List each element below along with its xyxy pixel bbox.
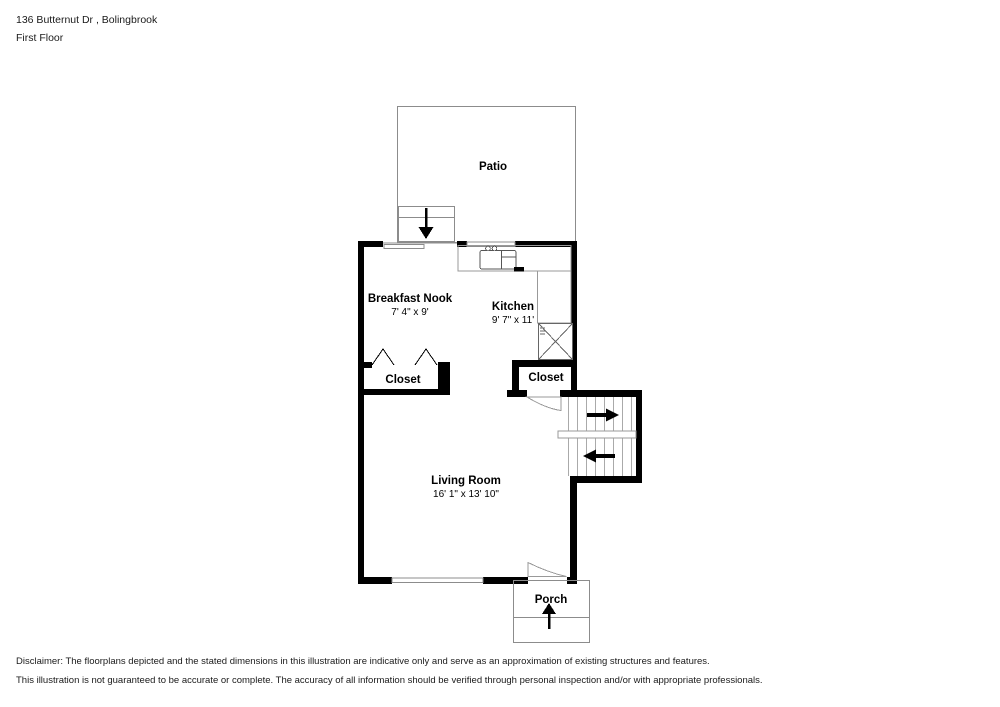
room-name: Closet bbox=[528, 371, 563, 385]
faucet-icon bbox=[486, 246, 491, 251]
room-name: Kitchen bbox=[492, 300, 534, 314]
room-name: Breakfast Nook bbox=[368, 292, 452, 306]
wall-stairs-top bbox=[560, 390, 642, 397]
disclaimer-line-1: Disclaimer: The floorplans depicted and … bbox=[16, 656, 710, 668]
kitchen-side-counter bbox=[538, 271, 572, 323]
closet-left-label: Closet bbox=[385, 373, 420, 387]
breakfast-nook-label: Breakfast Nook 7' 4" x 9' bbox=[368, 292, 452, 319]
patio-outline bbox=[398, 107, 576, 243]
dishwasher-mark bbox=[514, 267, 524, 272]
closet-right-door-swing bbox=[527, 397, 561, 411]
porch-label: Porch bbox=[535, 593, 568, 607]
wall-bottom-left bbox=[358, 577, 392, 584]
closet-right-bottom-wall bbox=[507, 390, 527, 397]
room-name: Porch bbox=[535, 593, 568, 607]
stairs bbox=[558, 397, 636, 476]
closet-left-pier-right bbox=[438, 362, 450, 393]
room-name: Closet bbox=[385, 373, 420, 387]
patio-sliding-door bbox=[384, 245, 424, 249]
wall-stairs-bottom bbox=[570, 476, 642, 483]
front-door-swing bbox=[528, 563, 567, 577]
wall-right-lower bbox=[570, 476, 577, 584]
closet-left-bottom-wall bbox=[358, 389, 450, 395]
room-name: Patio bbox=[479, 160, 507, 174]
room-dimensions: 7' 4" x 9' bbox=[368, 306, 452, 319]
floorplan-page: 136 Butternut Dr , Bolingbrook First Flo… bbox=[0, 0, 1000, 707]
living-room-label: Living Room 16' 1" x 13' 10" bbox=[431, 474, 501, 501]
closet-left-pier-left bbox=[358, 362, 372, 368]
living-room-window bbox=[392, 578, 483, 583]
closet-right-top-wall bbox=[512, 360, 577, 367]
stairs-up-arrow-icon bbox=[606, 409, 619, 422]
bifold-door-icon bbox=[372, 349, 394, 365]
stairs-down-arrow-icon bbox=[583, 450, 596, 463]
wall-top-right bbox=[515, 241, 577, 247]
closet-left-doors bbox=[372, 349, 437, 365]
disclaimer-line-2: This illustration is not guaranteed to b… bbox=[16, 675, 763, 687]
bifold-door-icon bbox=[415, 349, 437, 365]
stair-landing-divider bbox=[558, 431, 636, 438]
room-dimensions: 16' 1" x 13' 10" bbox=[431, 488, 501, 501]
room-name: Living Room bbox=[431, 474, 501, 488]
closet-right-label: Closet bbox=[528, 371, 563, 385]
wall-stairs-right bbox=[636, 390, 642, 483]
wall-left bbox=[358, 241, 364, 584]
patio-label: Patio bbox=[479, 160, 507, 174]
kitchen-label: Kitchen 9' 7" x 11' bbox=[492, 300, 534, 327]
porch-outline bbox=[514, 581, 590, 643]
floorplan-drawing bbox=[0, 0, 1000, 707]
room-dimensions: 9' 7" x 11' bbox=[492, 314, 534, 327]
sink-icon bbox=[480, 251, 516, 270]
faucet-icon bbox=[492, 246, 497, 251]
wall-right-upper bbox=[571, 241, 577, 397]
